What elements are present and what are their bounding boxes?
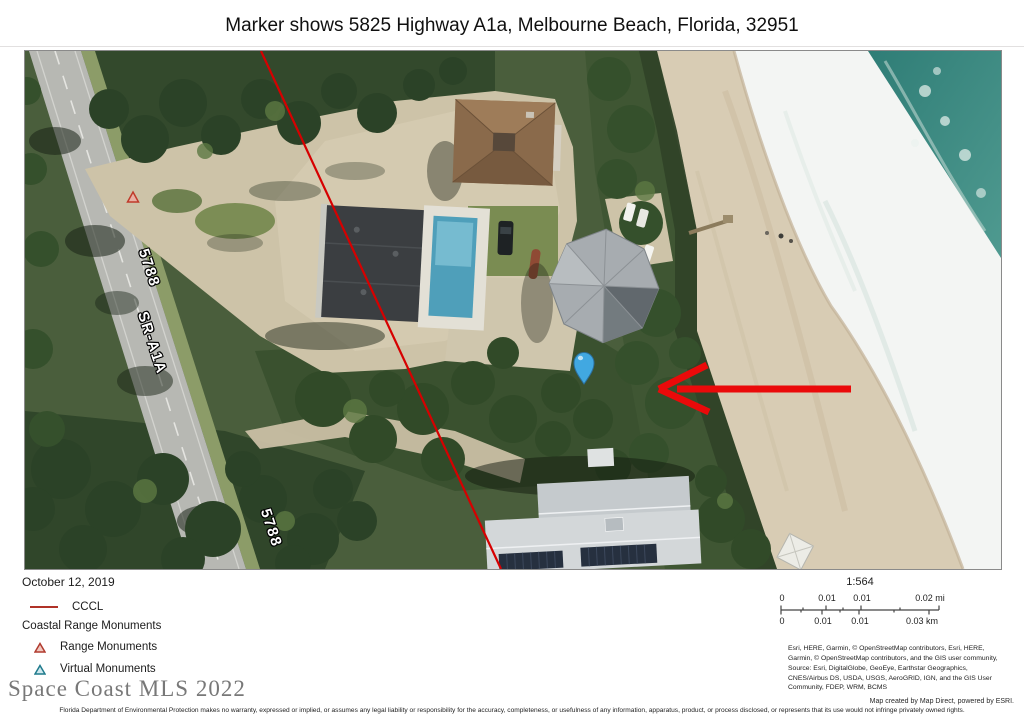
range-monuments-label: Range Monuments (60, 641, 157, 653)
scale-ratio: 1:564 (780, 576, 940, 588)
scale-km-0: 0 (779, 616, 784, 626)
map-credit: Map created by Map Direct, powered by ES… (870, 698, 1014, 705)
scale-km-3: 0.03 km (906, 616, 938, 626)
virtual-monument-icon (34, 664, 46, 675)
scale-mi-1: 0.01 (818, 593, 836, 603)
scale-bar: 1:564 0 0.01 0.01 0.02 mi 0 0.01 0.01 (780, 576, 944, 627)
scale-km-2: 0.01 (851, 616, 869, 626)
legend-group-title: Coastal Range Monuments (22, 620, 161, 632)
aerial-map[interactable]: 5788 SR-A1A 5788 (24, 50, 1002, 570)
disclaimer: Florida Department of Environmental Prot… (0, 707, 1024, 714)
watermark: Space Coast MLS 2022 (8, 676, 246, 702)
aerial-imagery[interactable] (25, 51, 1001, 569)
scale-km-labels: 0 0.01 0.01 0.03 km (780, 616, 940, 627)
attribution-text: Esri, HERE, Garmin, © OpenStreetMap cont… (788, 644, 1004, 693)
scale-bar-ticks (780, 605, 944, 615)
title-divider (0, 46, 1024, 47)
virtual-monuments-label: Virtual Monuments (60, 663, 156, 675)
scale-mi-2: 0.01 (853, 593, 871, 603)
range-monument-icon (34, 642, 46, 653)
map-report-page: Marker shows 5825 Highway A1a, Melbourne… (0, 0, 1024, 724)
scale-mi-3: 0.02 mi (915, 593, 945, 603)
page-title: Marker shows 5825 Highway A1a, Melbourne… (0, 15, 1024, 37)
swimming-pool (418, 205, 490, 330)
cccl-label: CCCL (72, 601, 103, 613)
scale-miles-labels: 0 0.01 0.01 0.02 mi (780, 593, 940, 604)
legend: October 12, 2019 CCCL Coastal Range Monu… (22, 575, 161, 682)
scale-mi-0: 0 (779, 593, 784, 603)
cccl-line-icon (30, 606, 58, 608)
scale-km-1: 0.01 (814, 616, 832, 626)
map-date: October 12, 2019 (22, 575, 161, 589)
